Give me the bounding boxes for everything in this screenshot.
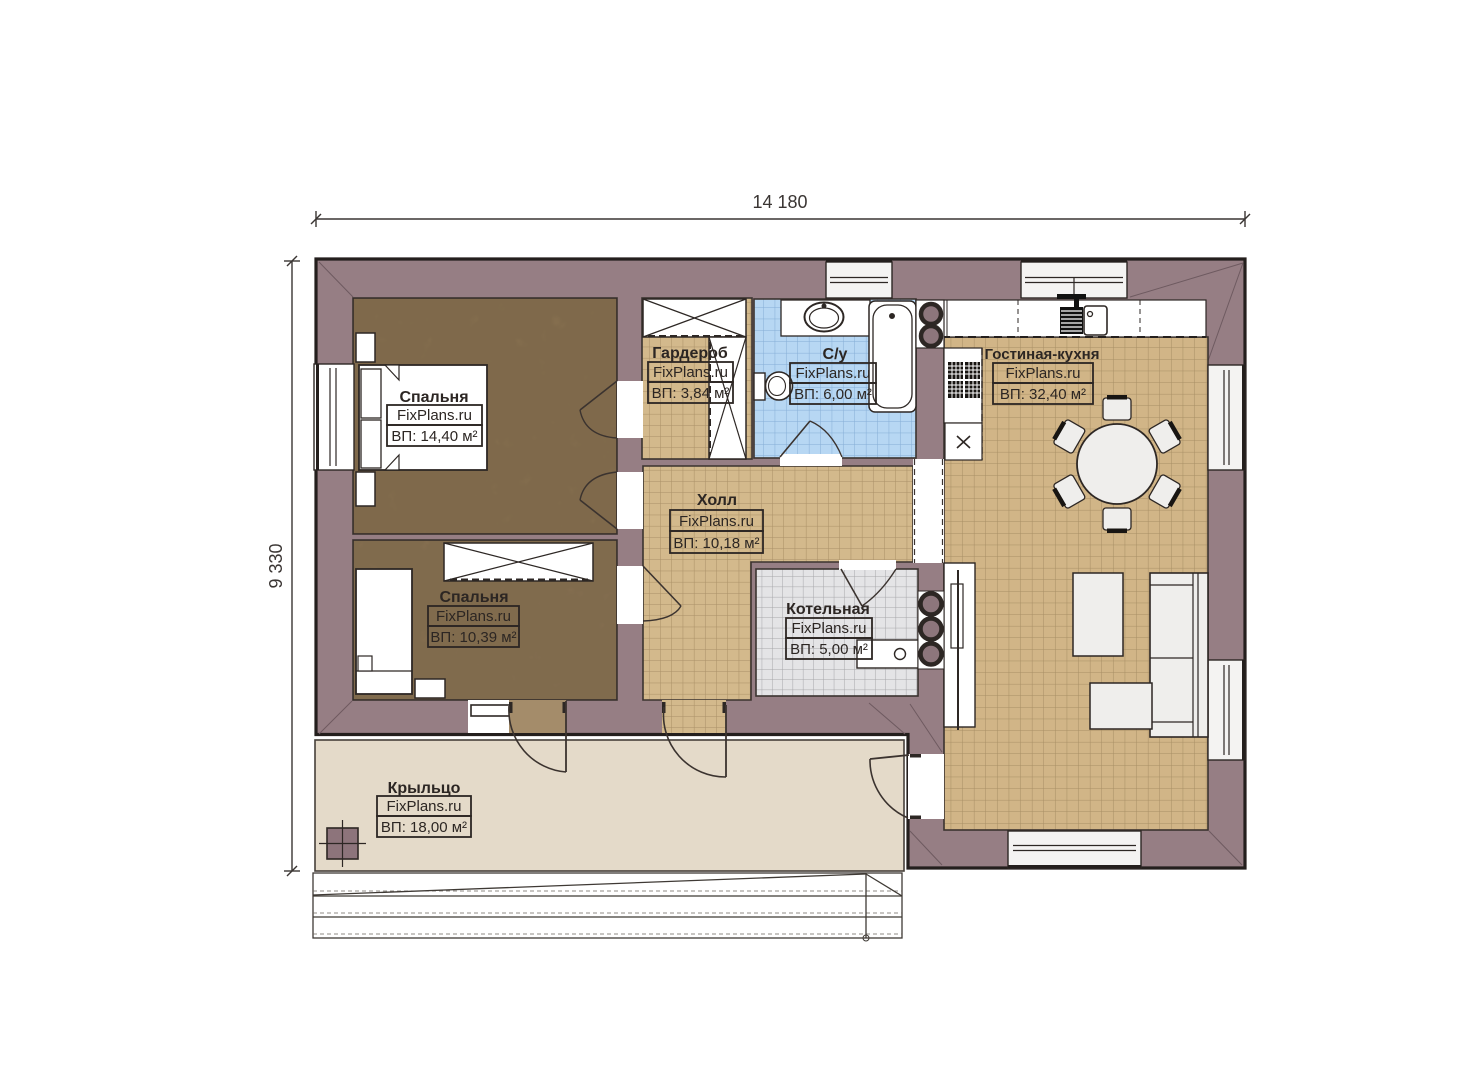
svg-text:Спальня: Спальня xyxy=(399,389,468,406)
svg-text:9 330: 9 330 xyxy=(266,543,286,588)
svg-text:Гардероб: Гардероб xyxy=(652,345,728,362)
svg-text:ВП: 18,00 м²: ВП: 18,00 м² xyxy=(381,819,467,836)
svg-text:ВП: 3,84 м²: ВП: 3,84 м² xyxy=(652,385,730,402)
svg-text:ВП: 10,39 м²: ВП: 10,39 м² xyxy=(430,629,516,646)
svg-text:FixPlans.ru: FixPlans.ru xyxy=(436,608,511,625)
svg-text:ВП: 6,00 м²: ВП: 6,00 м² xyxy=(794,386,872,403)
svg-text:FixPlans.ru: FixPlans.ru xyxy=(653,364,728,381)
svg-text:FixPlans.ru: FixPlans.ru xyxy=(679,513,754,530)
svg-text:ВП: 32,40 м²: ВП: 32,40 м² xyxy=(1000,386,1086,403)
svg-text:FixPlans.ru: FixPlans.ru xyxy=(795,365,870,382)
svg-text:Спальня: Спальня xyxy=(439,589,508,606)
svg-text:Холл: Холл xyxy=(697,492,737,509)
svg-text:FixPlans.ru: FixPlans.ru xyxy=(791,620,866,637)
svg-text:FixPlans.ru: FixPlans.ru xyxy=(386,798,461,815)
svg-text:Гостиная-кухня: Гостиная-кухня xyxy=(985,346,1100,363)
svg-text:FixPlans.ru: FixPlans.ru xyxy=(1005,365,1080,382)
svg-text:Крыльцо: Крыльцо xyxy=(388,780,461,797)
svg-text:ВП: 10,18 м²: ВП: 10,18 м² xyxy=(673,535,759,552)
svg-text:FixPlans.ru: FixPlans.ru xyxy=(397,407,472,424)
svg-text:14 180: 14 180 xyxy=(752,192,807,212)
svg-text:Котельная: Котельная xyxy=(786,601,870,618)
svg-text:ВП: 5,00 м²: ВП: 5,00 м² xyxy=(790,641,868,658)
svg-text:С/у: С/у xyxy=(823,346,848,363)
svg-text:ВП: 14,40 м²: ВП: 14,40 м² xyxy=(391,428,477,445)
